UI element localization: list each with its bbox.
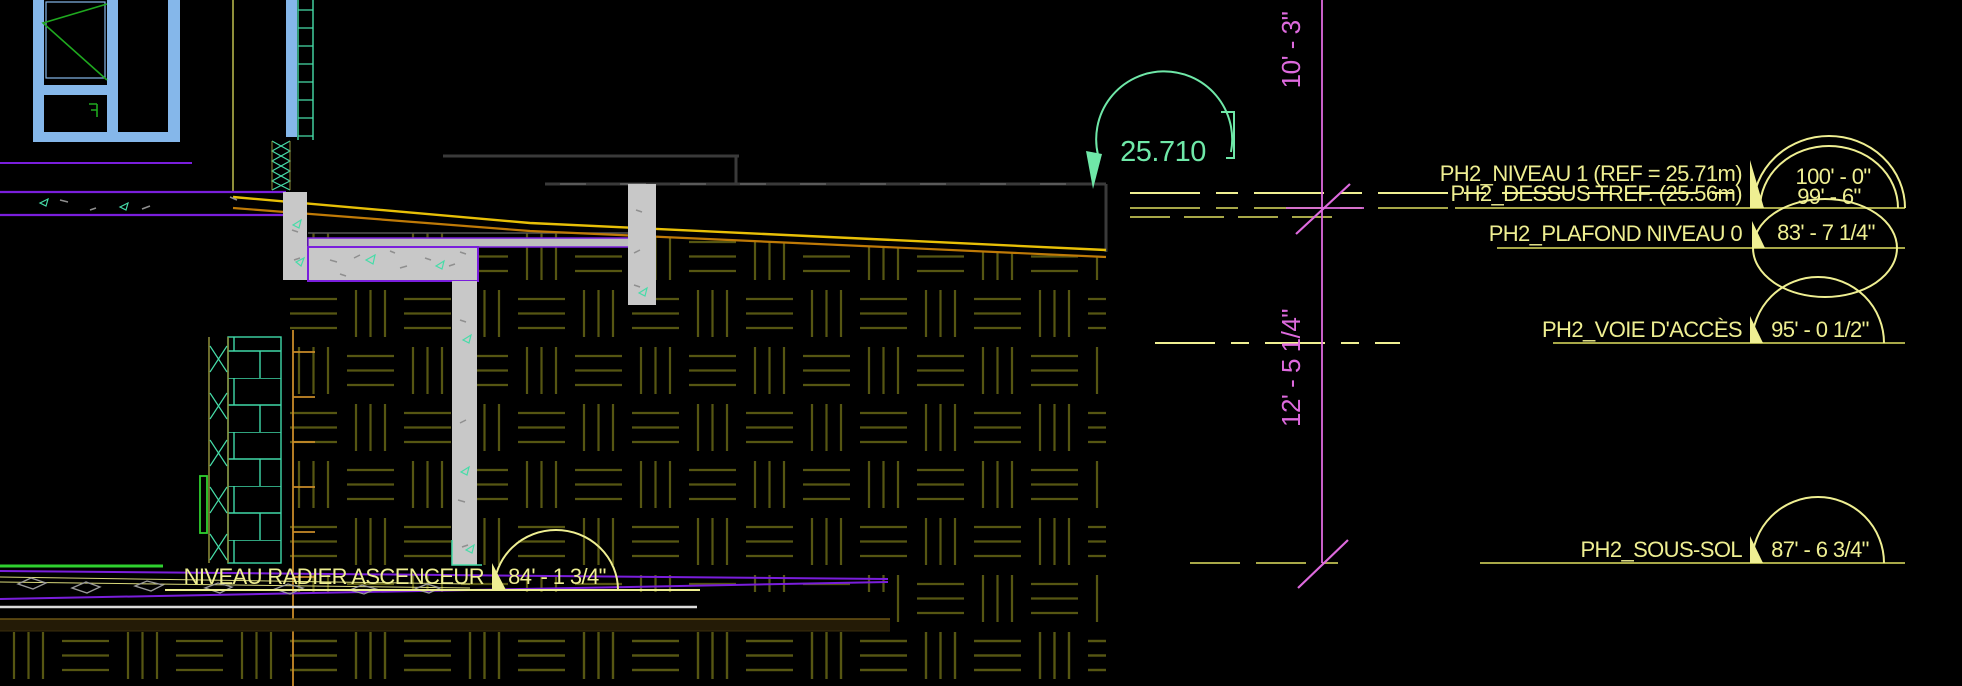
level-value-soussol: 87' - 6 3/4" bbox=[1771, 537, 1869, 562]
dimension-text-lower: 12' - 5 1/4" bbox=[1276, 309, 1306, 427]
cad-canvas[interactable]: 25.710 PH2_NIVEAU 1 (REF = 25.71m) PH2_D… bbox=[0, 0, 1962, 686]
section-drawing: 25.710 PH2_NIVEAU 1 (REF = 25.71m) PH2_D… bbox=[0, 0, 1962, 686]
brown-layer-band bbox=[0, 619, 890, 631]
topping-strip bbox=[308, 238, 652, 247]
window-bottom-bar bbox=[33, 132, 180, 142]
level-label-voie: PH2_VOIE D'ACCÈS bbox=[1542, 317, 1742, 342]
level-label-plafond: PH2_PLAFOND NIVEAU 0 bbox=[1489, 221, 1743, 246]
footing-hatch-band bbox=[0, 630, 1106, 686]
level-value-plafond: 83' - 7 1/4" bbox=[1777, 220, 1875, 245]
dimension-text-upper: 10' - 3" bbox=[1276, 11, 1306, 88]
brick-column bbox=[228, 337, 281, 563]
level-label-radier: NIVEAU RADIER ASCENCEUR bbox=[184, 564, 484, 589]
level-label-soussol: PH2_SOUS-SOL bbox=[1580, 537, 1742, 562]
window-frame-right bbox=[168, 0, 180, 142]
wall-panel bbox=[286, 0, 297, 137]
concrete-column-left bbox=[283, 192, 307, 280]
concrete-stud-right bbox=[628, 184, 656, 305]
level-value-dessus: 99' - 6" bbox=[1797, 184, 1860, 209]
level-value-voie: 95' - 0 1/2" bbox=[1771, 317, 1869, 342]
level-value-radier: 84' - 1 3/4" bbox=[508, 564, 606, 589]
level-label-dessus: PH2_DESSUS TREF. (25.56m) bbox=[1451, 181, 1742, 206]
window-frame-left bbox=[33, 0, 44, 142]
window-sill-bar bbox=[33, 85, 118, 95]
elevation-value: 25.710 bbox=[1120, 136, 1206, 168]
concrete-stud-mid bbox=[452, 281, 477, 565]
window-mullion bbox=[107, 0, 118, 142]
